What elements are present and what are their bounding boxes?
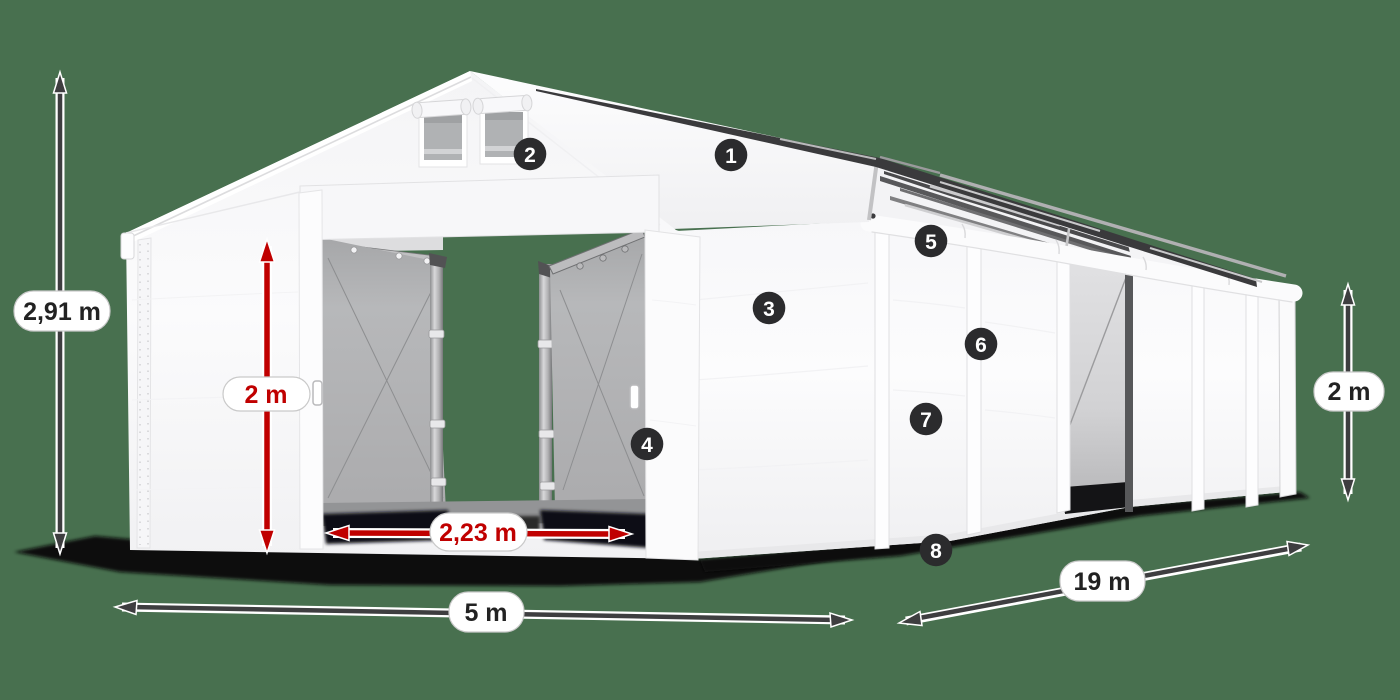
svg-text:4: 4 xyxy=(641,434,653,457)
svg-text:8: 8 xyxy=(930,540,942,563)
svg-text:1: 1 xyxy=(725,145,737,168)
svg-text:5 m: 5 m xyxy=(464,599,507,627)
svg-text:2,23 m: 2,23 m xyxy=(439,519,517,547)
svg-text:5: 5 xyxy=(925,231,937,254)
svg-text:2,91 m: 2,91 m xyxy=(23,298,101,326)
svg-text:6: 6 xyxy=(975,334,987,357)
svg-text:7: 7 xyxy=(920,409,932,432)
svg-text:2 m: 2 m xyxy=(1327,378,1370,406)
svg-text:3: 3 xyxy=(763,298,775,321)
svg-text:19 m: 19 m xyxy=(1074,568,1131,596)
svg-text:2: 2 xyxy=(524,144,536,167)
svg-text:2 m: 2 m xyxy=(244,381,287,409)
